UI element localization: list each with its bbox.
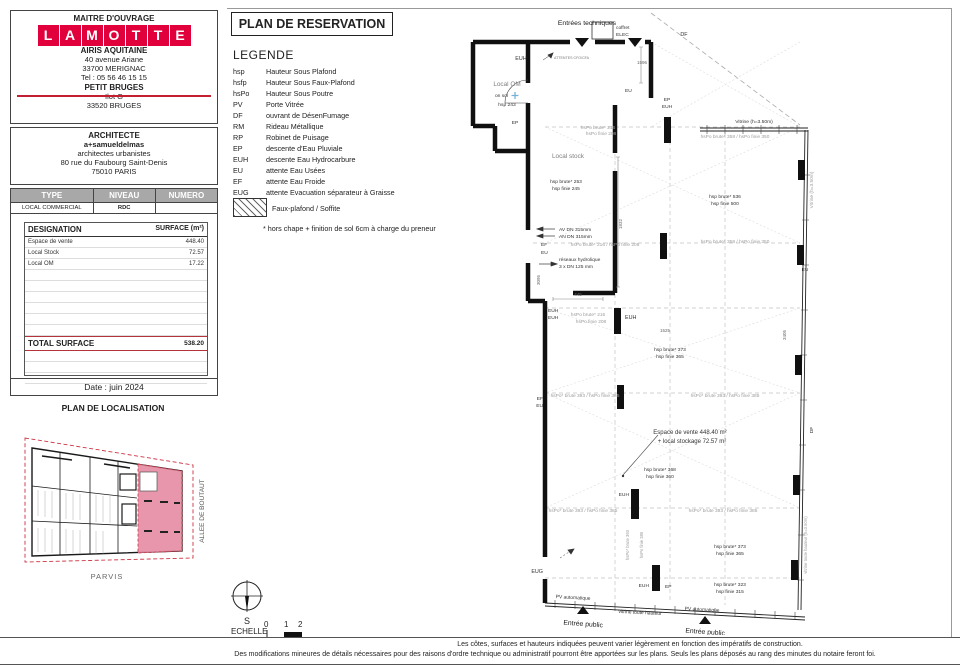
total-label: TOTAL SURFACE	[28, 339, 94, 348]
legend-heading: LEGENDE	[233, 48, 294, 62]
localisation-map: ALLEE DE BOUTAUT PARVIS	[12, 416, 216, 592]
hsPo358-a: hsPo brute* 358 / hsPo finie 350	[701, 134, 770, 140]
euh-l1-label: EUH	[548, 308, 559, 314]
legend-label: ouvrant de DésenFumage	[266, 111, 466, 120]
hsp323-1: hsp brute* 323	[714, 582, 746, 588]
row-label: Local OM	[28, 261, 54, 268]
storefront-glazing	[545, 125, 810, 620]
south-needle	[245, 596, 249, 611]
numero-value	[156, 203, 217, 213]
red-divider	[17, 95, 211, 97]
euh-bot-label: EUH	[639, 583, 650, 589]
hsPo216-a1: hsPo brute* 216	[581, 125, 616, 131]
designation-header: DESIGNATION SURFACE (m²)	[25, 223, 207, 237]
localisation-title: PLAN DE LOCALISATION	[13, 403, 213, 413]
compass: S	[225, 578, 269, 630]
column-vert-label-2: hsPo finie 385	[639, 531, 644, 558]
empty-row	[25, 292, 207, 303]
legend-abbr: RM	[233, 122, 244, 131]
dim-1525: 1525	[660, 328, 671, 333]
hsPo216-c1: hsPo brute* 216	[571, 312, 606, 318]
entree-public-2: Entrée public	[685, 628, 726, 635]
legend-label: Porte Vitrée	[266, 100, 466, 109]
an-dn-label: AN DN 315mm	[559, 234, 592, 240]
logo-letter: T	[148, 25, 169, 46]
columns	[614, 117, 805, 591]
euh-top-label: EUH	[515, 56, 526, 62]
hsp323-2: hsp finie 315	[716, 589, 744, 595]
date-row: Date : juin 2024	[11, 378, 217, 395]
legend-abbr: EP	[233, 144, 243, 153]
euh-m-label: EUH	[625, 315, 636, 321]
scale-tick-2: 2	[298, 620, 302, 629]
legend-note: * hors chape + finition de sol 6cm à cha…	[263, 224, 483, 233]
legend-abbr: PV	[233, 100, 243, 109]
maitre-company: AIRIS AQUITAINE	[11, 46, 217, 55]
eug-label: EUG	[531, 569, 543, 575]
legend-list: hspHauteur Sous Plafond hsfpHauteur Sous…	[233, 67, 453, 247]
legend-abbr: EUH	[233, 155, 248, 164]
vitrine-right-label: Vitrine (h=3.50m)	[809, 171, 815, 208]
row-label: Local Stock	[28, 250, 59, 257]
project-city: 33520 BRUGES	[11, 101, 217, 110]
legend-abbr: EUG	[233, 188, 249, 197]
surface-col: SURFACE (m²)	[155, 225, 204, 234]
maitre-heading: MAITRE D'OUVRAGE	[11, 14, 217, 23]
legend-abbr: EF	[233, 177, 242, 186]
compass-south-label: S	[244, 616, 250, 626]
type-header-cell: TYPE	[11, 189, 94, 202]
hsPo393-d: hsPo* brute 393 / hsPo finie 385	[689, 508, 758, 514]
on-sol-mark	[512, 92, 519, 99]
eu-edge-label: EU	[802, 267, 809, 273]
hatch-swatch	[233, 198, 267, 217]
total-surface-row: TOTAL SURFACE 538.20	[25, 336, 207, 351]
legend-abbr: RP	[233, 133, 243, 142]
euh-col-label: EUH	[619, 492, 630, 498]
empty-row	[25, 303, 207, 314]
av-dn-label: AV DN 315mm	[559, 227, 591, 233]
bottom-border	[0, 664, 960, 665]
architecte-line2: architectes urbanistes	[11, 149, 217, 158]
hsp536-label: hsp brute* 536	[709, 194, 741, 200]
disclaimer-line-2: Des modifications mineures de détails né…	[75, 651, 960, 658]
hsp368-2: hsp finie 360	[646, 474, 674, 480]
designation-table: DESIGNATION SURFACE (m²) Espace de vente…	[24, 222, 208, 376]
logo-letter: M	[82, 25, 103, 46]
architecte-box: ARCHITECTE a+samueldelmas architectes ur…	[10, 127, 218, 185]
coffret-label2: ELEC	[616, 32, 629, 38]
column-vert-label-1: hsPo* brute 393	[625, 529, 630, 560]
logo-letter: E	[170, 25, 191, 46]
hatch-label: Faux-plafond / Soffite	[272, 204, 340, 213]
hsp253-label: hsp brute* 253	[550, 179, 582, 185]
empty-row	[25, 325, 207, 336]
logo-letter: O	[104, 25, 125, 46]
maitre-address1: 40 avenue Ariane	[11, 55, 217, 64]
dim-3405: 3405	[782, 329, 787, 340]
street-label: ALLEE DE BOUTAUT	[199, 479, 206, 542]
empty-row	[25, 314, 207, 325]
hsPo216-a2: hsPo finie 208	[586, 131, 617, 137]
designation-col: DESIGNATION	[28, 225, 82, 234]
logo-letter: T	[126, 25, 147, 46]
numero-header-cell: NUMERO	[156, 189, 217, 202]
table-row: Espace de vente 448.40	[25, 237, 207, 248]
espace-annotation-2: + local stockage 72.57 m²	[658, 439, 727, 445]
pv-automatique-2: PV automatique	[685, 606, 720, 614]
scale-tick-0: 0	[264, 620, 268, 629]
hsPo216-b: hsPo brute* 216 / hsPo finie 208	[571, 242, 640, 248]
logo-letter: A	[60, 25, 81, 46]
table-row: Local OM 17.22	[25, 259, 207, 270]
maitre-tel: Tel : 05 56 46 15 15	[11, 73, 217, 82]
empty-row	[25, 270, 207, 281]
niveau-value: RDC	[94, 203, 156, 213]
scale-tick-1: 1	[284, 620, 288, 629]
floor-plan: coffret ELEC Entrées techniques DF	[455, 5, 955, 635]
ef-a-label: EF	[541, 242, 547, 248]
legend-label: Robinet de Puisage	[266, 133, 466, 142]
hsp500-label: hsp finie 500	[711, 201, 739, 207]
hsp373-b1: hsp brute* 373	[714, 544, 746, 550]
hsp373-b2: hsp finie 365	[716, 551, 744, 557]
type-table-header: TYPE NIVEAU NUMERO	[11, 189, 217, 203]
legend-abbr: hsp	[233, 67, 245, 76]
vitrine-top-label: Vitrine (h=3.50m)	[735, 119, 773, 125]
espace-annotation-1: Espace de vente 448.40 m²	[653, 430, 726, 436]
row-value: 17.22	[189, 261, 204, 268]
on-sol-label: on sol	[495, 93, 508, 99]
disclaimer-line-1: Les côtes, surfaces et hauteurs indiquée…	[300, 641, 960, 648]
legend-label: descente Eau Hydrocarbure	[266, 155, 466, 164]
empty-row	[25, 362, 207, 373]
architecte-heading: ARCHITECTE	[11, 131, 217, 140]
euh-c-label: EUH	[662, 104, 673, 110]
legend-label: attente Evacuation séparateur à Graisse	[266, 188, 466, 197]
dim-3095: 3095	[536, 274, 541, 285]
architecte-name: a+samueldelmas	[11, 140, 217, 149]
type-value: LOCAL COMMERCIAL	[11, 203, 94, 213]
hsp373-a1: hsp brute* 373	[654, 347, 686, 353]
ep-om-label: EP	[512, 120, 519, 126]
walls	[473, 42, 651, 603]
legend-label: attente Eau Usées	[266, 166, 466, 175]
maitre-address2: 33700 MERIGNAC	[11, 64, 217, 73]
hsp373-a2: hsp finie 365	[656, 354, 684, 360]
hsPo216-c2: hsPo finie 208	[576, 319, 607, 325]
legend-label: Rideau Métallique	[266, 122, 466, 131]
hsPo393-b: hsPo* brute 393 / hsPo finie 385	[691, 393, 760, 399]
total-value: 538.20	[184, 340, 204, 347]
hsPo358-b: hsPo brute* 358 / hsPo finie 350	[701, 239, 770, 245]
ep-c-label: EP	[664, 97, 671, 103]
coffret-label1: coffret	[616, 25, 630, 31]
legend-abbr: hsfp	[233, 78, 247, 87]
reseaux-label: réseaux hydrolique	[559, 257, 601, 263]
table-row: Local Stock 72.57	[25, 248, 207, 259]
entree-public-1: Entrée public	[563, 620, 604, 630]
highlighted-lot	[138, 464, 182, 553]
dim-1832: 1832	[618, 218, 623, 229]
parvis-label: PARVIS	[91, 572, 124, 581]
dim-445: 445	[574, 292, 582, 297]
architecte-line4: 75010 PARIS	[11, 167, 217, 176]
local-om-label: Local OM	[493, 81, 520, 88]
row-value: 72.57	[189, 250, 204, 257]
type-table-row: LOCAL COMMERCIAL RDC	[11, 203, 217, 214]
row-label: Espace de vente	[28, 239, 73, 246]
ef-b-label: EF	[537, 396, 543, 402]
niveau-header-cell: NIVEAU	[94, 189, 156, 202]
legend-abbr: hsPo	[233, 89, 249, 98]
maitre-douvrage-box: MAITRE D'OUVRAGE LAMOTTE AIRIS AQUITAINE…	[10, 10, 218, 124]
attentes-cfo-label: ATTENTES CFO/CFA	[554, 56, 590, 60]
hsPo393-c: hsPo* brute 393 / hsPo finie 385	[549, 508, 618, 514]
eu-a-label: EU	[541, 250, 548, 256]
legend-label: Hauteur Sous Poutre	[266, 89, 466, 98]
vitrine-bottom-label: vitrine toute hauteur	[618, 609, 662, 617]
legend-abbr: EU	[233, 166, 243, 175]
hsp368-1: hsp brute* 368	[644, 467, 676, 473]
surface-tables-box: TYPE NIVEAU NUMERO LOCAL COMMERCIAL RDC …	[10, 188, 218, 396]
dn125-label: 3 x DN 125 mm	[559, 264, 593, 270]
legend-label: Hauteur Sous Plafond	[266, 67, 466, 76]
euh-l2-label: EUH	[548, 315, 559, 321]
page-title: PLAN DE RESERVATION	[231, 12, 393, 36]
legend-abbr: DF	[233, 111, 243, 120]
logo-letter: L	[38, 25, 59, 46]
df-right-label: DF	[809, 427, 815, 434]
lamotte-logo: LAMOTTE	[11, 25, 217, 46]
project-name: PETIT BRUGES	[11, 83, 217, 92]
architecte-line3: 80 rue du Faubourg Saint-Denis	[11, 158, 217, 167]
entrees-techniques-label: Entrées techniques	[558, 20, 617, 27]
legend-label: attente Eau Froide	[266, 177, 466, 186]
empty-row	[25, 281, 207, 292]
empty-row	[25, 351, 207, 362]
hsPo393-a: hsPo* brute 393 / hsPo finie 385	[551, 393, 620, 399]
legend-label: descente d'Eau Pluviale	[266, 144, 466, 153]
footer-divider	[0, 637, 960, 638]
local-stock-label: Local stock	[552, 153, 585, 160]
hydraulic-arrows	[537, 53, 574, 558]
vitrine-low-label: vitrine toute hauteur (h=3.50m)	[803, 516, 808, 574]
ep-bot-label: EP	[665, 584, 672, 590]
dim-1596: 1596	[637, 60, 648, 65]
row-value: 448.40	[186, 239, 204, 246]
eu-top-label: EU	[625, 88, 632, 94]
scale-bar	[262, 630, 308, 640]
hsp245-label: hsp finie 245	[552, 186, 580, 192]
pv-automatique-1: PV automatique	[556, 594, 591, 602]
eu-b-label: EU	[536, 403, 543, 409]
legend-label: Hauteur Sous Faux-Plafond	[266, 78, 466, 87]
df-top-label: DF	[680, 32, 688, 38]
hsp243-label: hsp 243	[498, 102, 516, 108]
